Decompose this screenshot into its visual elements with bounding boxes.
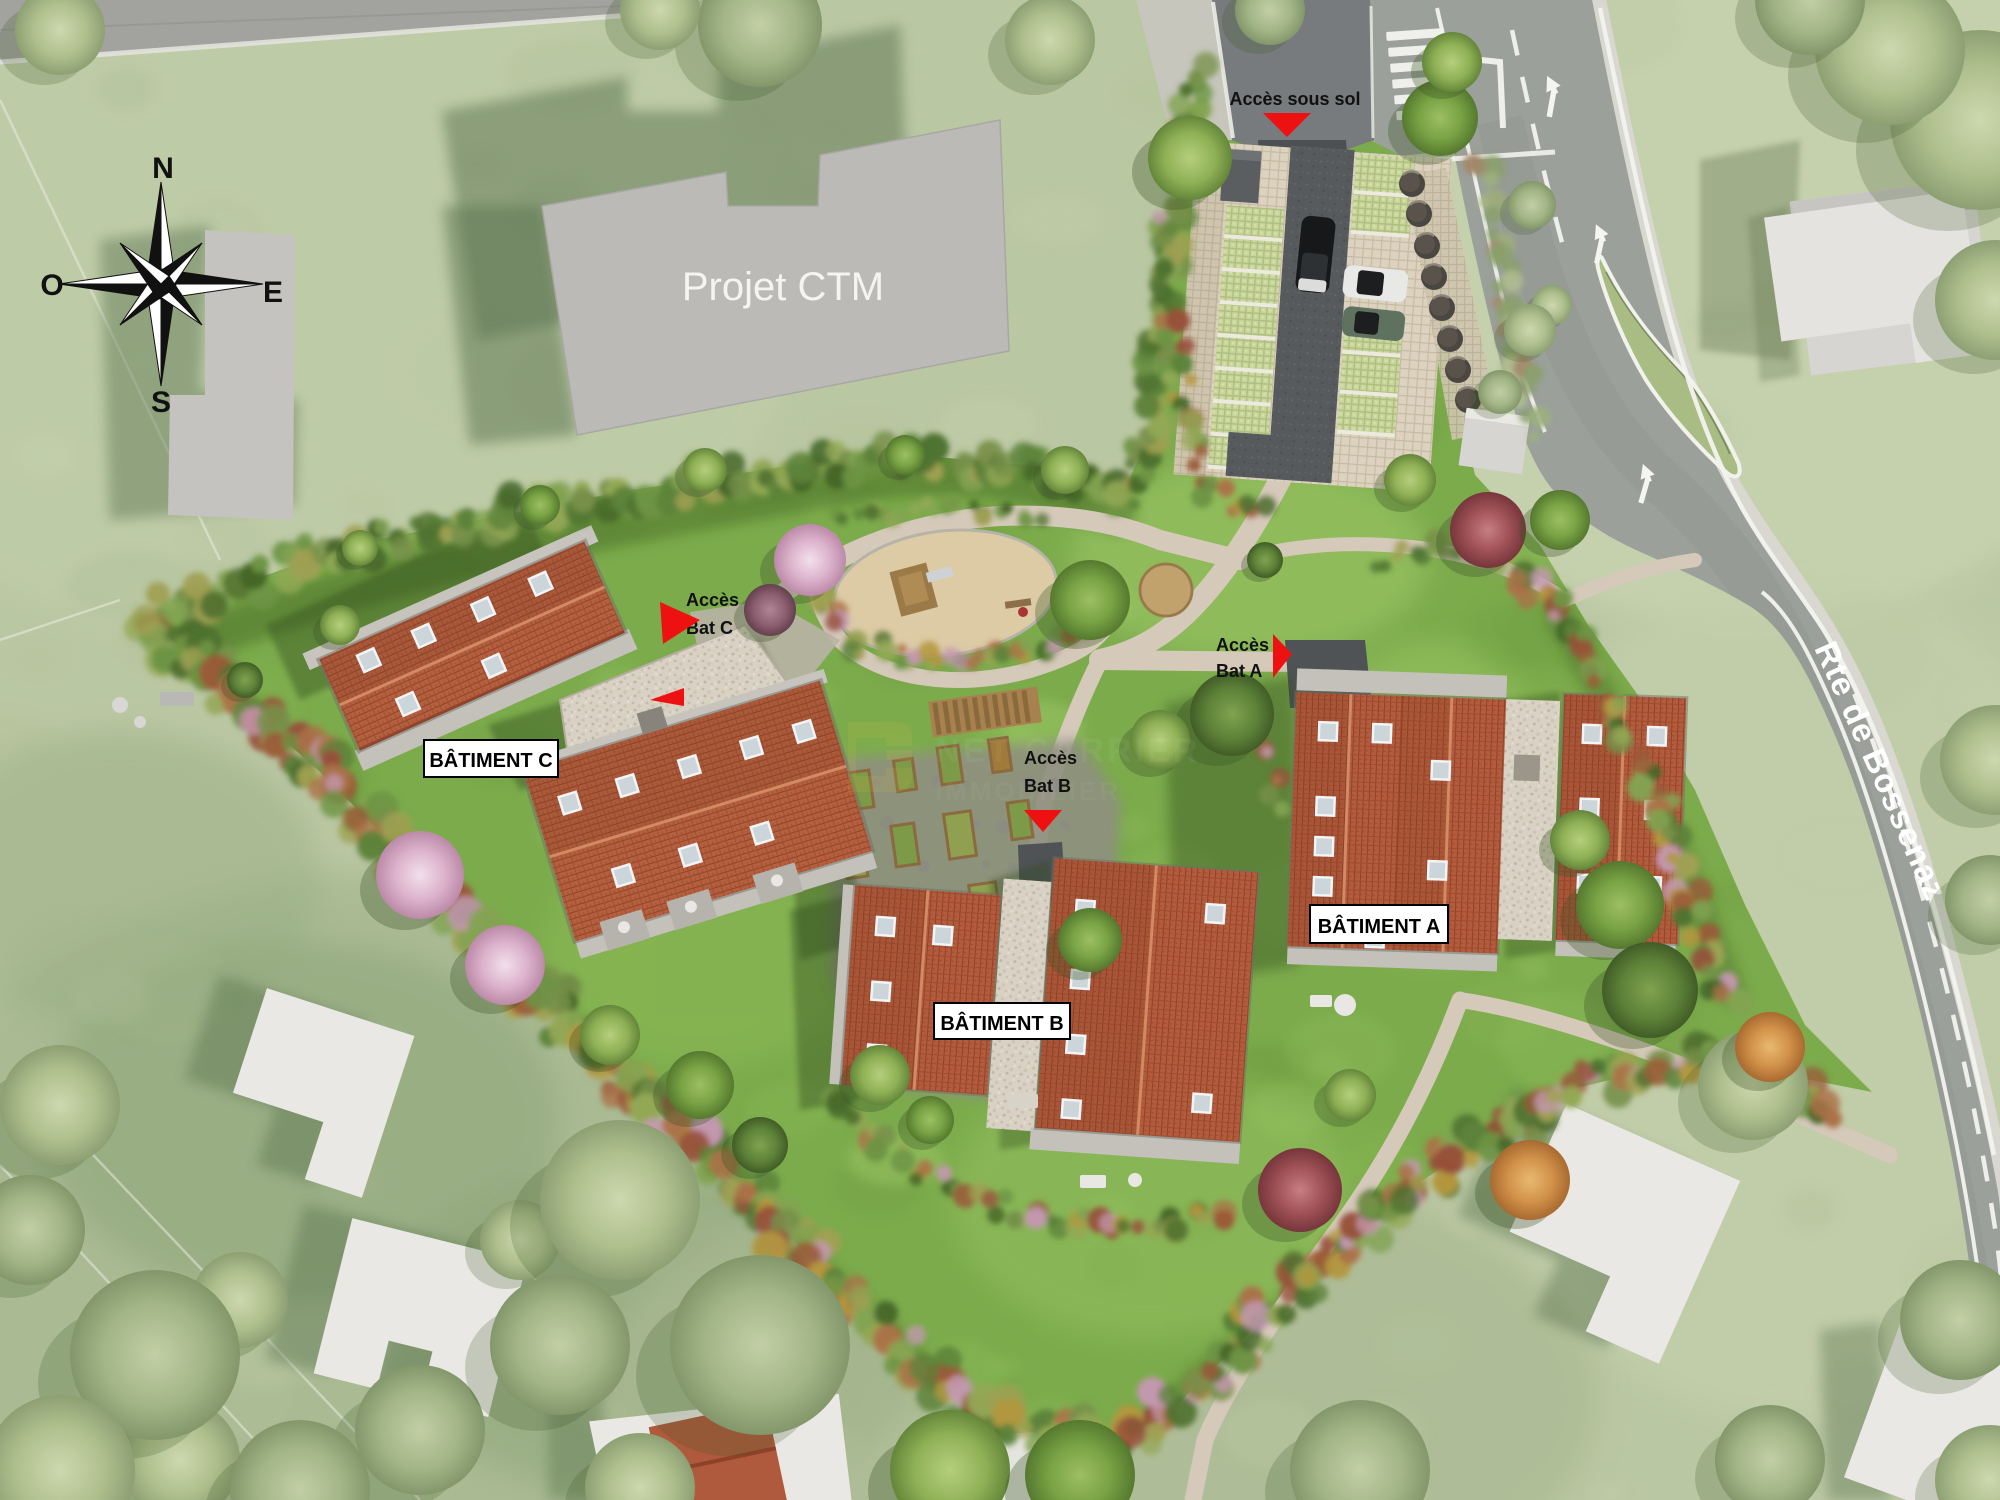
svg-text:Projet CTM: Projet CTM — [682, 265, 884, 309]
svg-text:E: E — [263, 276, 283, 309]
svg-text:N: N — [152, 152, 174, 185]
svg-text:BÂTIMENT B: BÂTIMENT B — [940, 1011, 1063, 1035]
svg-text:Accès: Accès — [1024, 748, 1077, 768]
svg-text:O: O — [40, 269, 63, 302]
svg-text:BÂTIMENT A: BÂTIMENT A — [1318, 914, 1441, 938]
svg-text:Accès sous sol: Accès sous sol — [1229, 89, 1360, 109]
svg-text:Bat B: Bat B — [1024, 776, 1071, 796]
svg-text:Bat A: Bat A — [1216, 661, 1262, 681]
svg-text:S: S — [151, 386, 171, 419]
svg-text:BÂTIMENT C: BÂTIMENT C — [429, 748, 552, 772]
svg-text:Accès: Accès — [1216, 635, 1269, 655]
svg-text:Accès: Accès — [686, 590, 739, 610]
